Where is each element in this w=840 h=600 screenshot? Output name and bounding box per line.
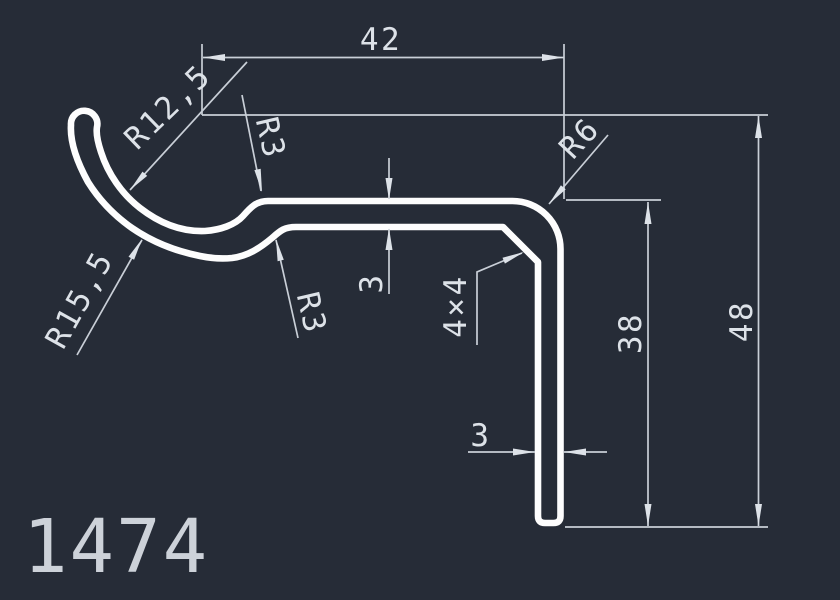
dim-label-width: 42 <box>360 22 402 58</box>
technical-drawing: 42 48 38 3 3 4×4 R12,5 <box>0 0 840 600</box>
arrowhead-right <box>542 54 564 61</box>
dim-overall-height: 48 <box>724 116 762 526</box>
dim-label-arm-thickness: 3 <box>354 272 390 293</box>
arrowhead-right <box>513 449 535 456</box>
arrowhead <box>254 169 262 192</box>
arrowhead-down <box>386 178 393 200</box>
arrowhead-up <box>386 228 393 250</box>
label-chamfer: 4×4 <box>438 274 474 338</box>
callout-hook-outer-radius: R15,5 <box>39 239 142 355</box>
leader-line <box>477 253 522 345</box>
cad-canvas: 42 48 38 3 3 4×4 R12,5 <box>0 0 840 600</box>
arrowhead-bottom <box>755 504 762 526</box>
label-hook-inner-radius: R12,5 <box>118 57 219 156</box>
callout-fillet-top: R3 <box>242 95 292 192</box>
dim-label-leg-thickness: 3 <box>470 418 491 454</box>
callout-chamfer: 4×4 <box>438 252 524 345</box>
arrowhead <box>130 172 147 190</box>
label-corner-radius: R6 <box>552 111 607 167</box>
callout-hook-inner-radius: R12,5 <box>118 57 247 190</box>
arrowhead-left <box>564 449 586 456</box>
dim-label-leg-height: 38 <box>613 312 649 354</box>
callout-corner-radius: R6 <box>549 111 608 204</box>
callout-fillet-bottom: R3 <box>276 239 333 338</box>
arrowhead <box>276 239 284 261</box>
profile-number: 1474 <box>23 504 209 590</box>
dim-overall-width: 42 <box>203 22 564 61</box>
arrowhead <box>503 252 525 264</box>
arrowhead-top <box>755 116 762 138</box>
arrowhead-left <box>203 54 225 61</box>
dim-label-height: 48 <box>724 300 760 342</box>
arrowhead-bottom <box>645 504 652 526</box>
arrowhead-top <box>645 202 652 224</box>
arrowhead <box>129 239 143 260</box>
dim-leg-height: 38 <box>613 202 652 526</box>
